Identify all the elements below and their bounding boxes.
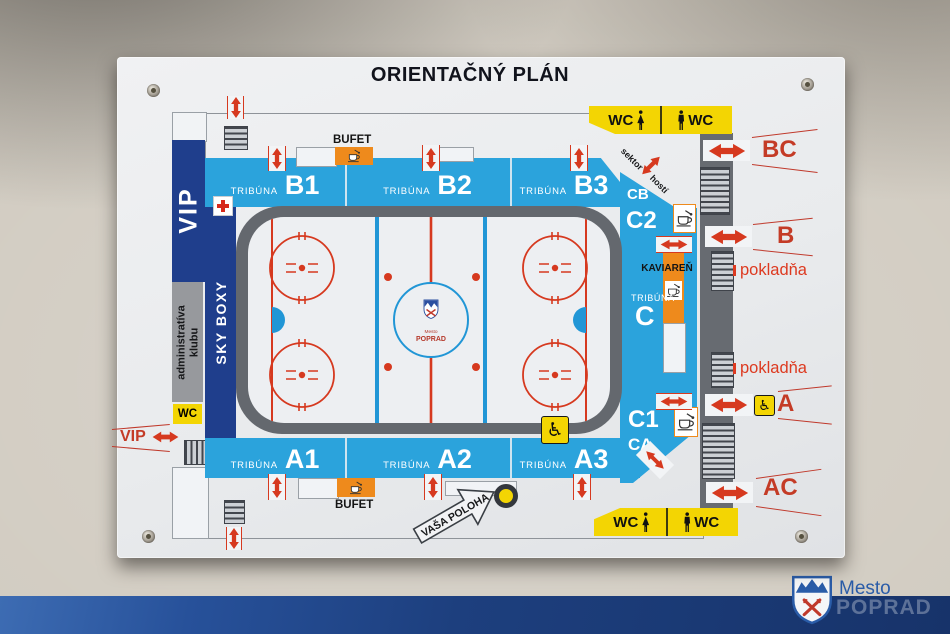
double-arrow-icon — [660, 396, 688, 407]
wc-banner-south: WC WC — [594, 508, 738, 536]
bufet-stand — [335, 147, 373, 165]
stand-b2: TRIBÚNA B2 — [345, 170, 510, 201]
wc-small-sign: WC — [173, 404, 202, 424]
stand-b2-label: B2 — [437, 170, 472, 201]
tribuna-label: TRIBÚNA — [231, 186, 278, 197]
tribuna-label: TRIBÚNA — [520, 186, 567, 197]
pokladna-text: pokladňa — [740, 359, 807, 378]
double-arrow-icon — [272, 148, 283, 170]
gate-arrow — [227, 96, 244, 119]
double-arrow-icon — [152, 431, 179, 443]
gate-arrow — [268, 146, 286, 171]
kaviaren-label: KAVIAREŇ — [630, 263, 704, 274]
stand-b1-label: B1 — [285, 170, 320, 201]
entry-box — [172, 112, 207, 142]
wc-banner-north: WC WC — [589, 106, 732, 134]
double-arrow-icon — [272, 476, 283, 498]
double-arrow-icon — [710, 397, 748, 413]
gate-arrow — [226, 527, 242, 550]
tribuna-label: TRIBÚNA — [520, 460, 567, 471]
administration-label-line1: administratíva — [175, 305, 188, 380]
ticket-office-label: pokladňa — [733, 261, 807, 280]
stand-a2-label: A2 — [437, 444, 472, 475]
bufet-stand — [337, 478, 375, 497]
double-arrow-icon — [711, 485, 749, 501]
wc-label: WC — [608, 112, 633, 129]
stairs-icon — [702, 423, 735, 479]
entrance-bc-gate — [703, 140, 750, 161]
wc-label: WC — [613, 514, 638, 531]
entrance-a-gate — [705, 394, 753, 416]
entrance-b-gate — [705, 226, 752, 247]
exit-b-label: B — [777, 222, 794, 250]
vip-zone: VIP — [172, 140, 205, 282]
stand-a1: TRIBÚNA A1 — [205, 444, 345, 475]
stand-a2: TRIBÚNA A2 — [345, 444, 510, 475]
gate-arrow — [268, 474, 286, 500]
section-cb-label: CB — [627, 186, 649, 203]
svg-text:Mesto: Mesto — [424, 329, 437, 335]
man-icon — [683, 512, 691, 533]
bufet-south-label: BUFET — [335, 499, 373, 511]
exit-bc-label: BC — [762, 136, 797, 164]
stand-a1-label: A1 — [285, 444, 320, 475]
ice-rink: Mesto POPRAD — [236, 206, 622, 434]
vip-zone-label: VIP — [173, 140, 206, 282]
double-arrow-icon — [577, 476, 588, 498]
exit-a-label: A — [777, 390, 794, 418]
service-box — [663, 323, 686, 373]
vip-entrance-label: VIP — [120, 428, 146, 446]
gate-arrow — [656, 236, 692, 253]
woman-icon — [636, 110, 645, 131]
bufet-counter — [298, 478, 339, 499]
poprad-coat-of-arms-icon — [791, 575, 833, 625]
stairs-icon — [224, 500, 245, 524]
gate-arrow — [570, 145, 588, 171]
stand-b3: TRIBÚNA B3 — [505, 170, 623, 201]
section-c2-label: C2 — [626, 207, 657, 235]
administration-label-line2: klubu — [188, 328, 201, 357]
screw — [795, 530, 808, 543]
stairs-icon — [700, 167, 730, 215]
double-arrow-icon — [708, 143, 746, 159]
double-arrow-icon — [229, 528, 240, 550]
tribuna-label: TRIBÚNA — [231, 460, 278, 471]
double-arrow-icon — [660, 239, 688, 250]
double-arrow-icon — [426, 147, 437, 169]
exit-ac-label: AC — [763, 474, 798, 502]
service-box — [172, 467, 209, 539]
footer-poprad-watermark: POPRAD — [836, 596, 932, 620]
man-icon — [677, 110, 685, 131]
ticket-office-label: pokladňa — [733, 359, 807, 378]
stand-a3: TRIBÚNA A3 — [505, 444, 623, 475]
stairs-icon — [711, 251, 734, 291]
pokladna-text: pokladňa — [740, 261, 807, 280]
gate-arrow — [656, 393, 692, 410]
sky-boxy-zone: SKY BOXY — [205, 207, 236, 438]
page-title: ORIENTAČNÝ PLÁN — [117, 64, 823, 87]
wheelchair-icon: ♿ — [754, 395, 775, 416]
double-arrow-icon — [710, 229, 748, 245]
stairs-icon — [711, 352, 734, 388]
coffee-cup-icon — [673, 204, 696, 233]
stand-a3-label: A3 — [574, 444, 609, 475]
stand-c-label: C — [635, 301, 655, 332]
tribuna-label: TRIBÚNA — [383, 186, 430, 197]
wc-small-label: WC — [178, 408, 197, 420]
coffee-cup-icon — [348, 480, 364, 496]
coffee-cup-icon — [674, 407, 698, 437]
gate-arrow — [422, 145, 440, 171]
entrance-ac-gate — [706, 482, 753, 503]
stairs-icon — [224, 126, 248, 150]
svg-text:POPRAD: POPRAD — [416, 336, 446, 343]
stand-b3-label: B3 — [574, 170, 609, 201]
coffee-cup-icon — [346, 148, 362, 164]
bufet-counter — [296, 147, 337, 167]
photo-of-orientation-sign: Mesto POPRAD ORIENTAČNÝ PLÁN VIP adminis… — [0, 0, 950, 634]
you-are-here-dot — [494, 484, 518, 508]
wheelchair-icon: ♿ — [541, 416, 569, 444]
club-administration-zone: administratíva klubu — [172, 282, 203, 402]
wc-label: WC — [688, 112, 713, 129]
section-c1-label: C1 — [628, 406, 659, 434]
first-aid-cross-icon — [213, 196, 233, 216]
tribuna-label: TRIBÚNA — [383, 460, 430, 471]
gate-arrow — [573, 474, 591, 500]
sky-boxy-label: SKY BOXY — [205, 207, 236, 438]
double-arrow-icon — [574, 147, 585, 169]
woman-icon — [641, 512, 650, 533]
double-arrow-icon — [230, 97, 241, 119]
screw — [142, 530, 155, 543]
bufet-north-label: BUFET — [333, 134, 371, 146]
wc-label: WC — [694, 514, 719, 531]
